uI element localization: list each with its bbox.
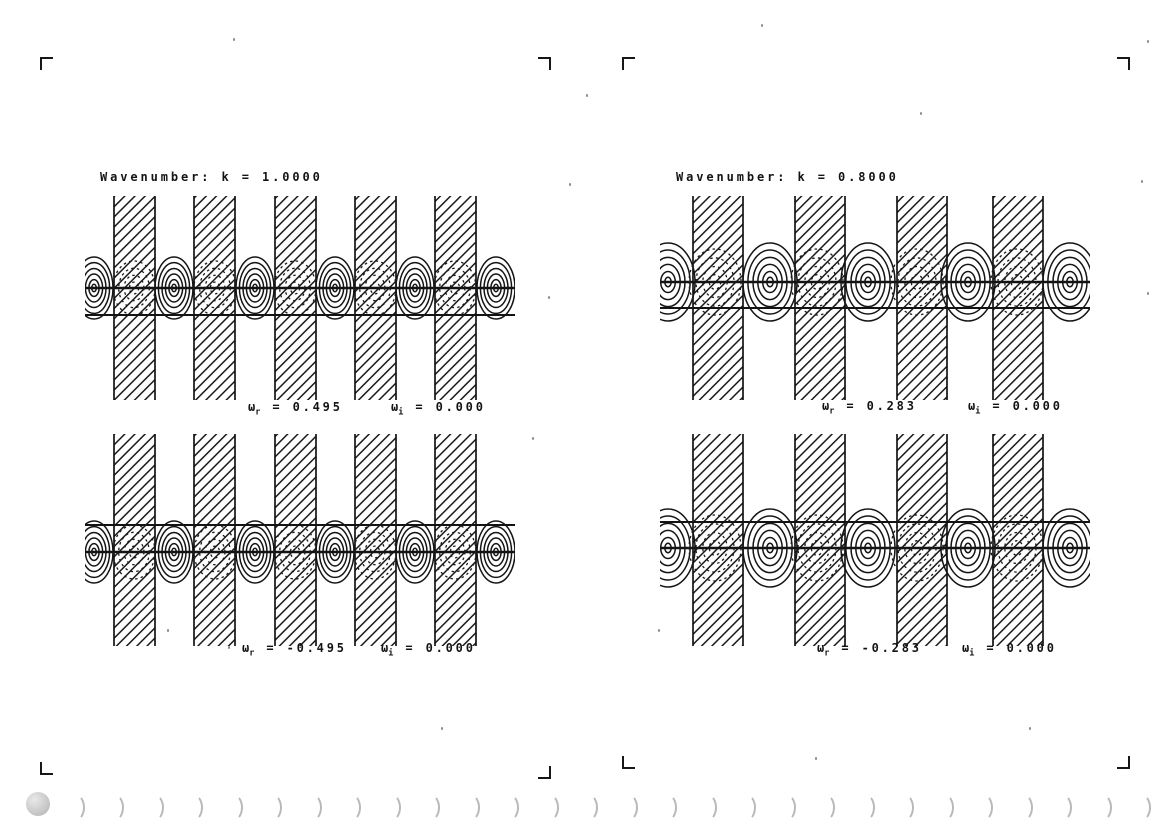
contour-plot-bottom-right [660, 428, 1090, 648]
contour-plot-bottom-left [85, 428, 515, 648]
binding-hole [1093, 794, 1112, 821]
binding-hole [777, 794, 796, 821]
panel-top-right: Wavenumber: k = 0.8000 ωr=0.283 ωi=0.000 [660, 168, 1090, 418]
omega-subscript: i [388, 648, 393, 658]
omega-i-symbol: ωi [381, 641, 393, 655]
omega-r-symbol: ωr [817, 641, 829, 655]
panel-bottom-right: ωr=-0.283 ωi=0.000 [660, 428, 1090, 663]
omega-r-value: -0.495 [287, 641, 347, 655]
scan-noise-dot [815, 757, 817, 760]
omega-subscript: r [249, 648, 254, 658]
scan-noise-dot [441, 727, 443, 730]
binding-hole [895, 794, 914, 821]
omega-r-value: -0.283 [862, 641, 922, 655]
panel-bottom-left: ωr=-0.495 ωi=0.000 [85, 428, 515, 663]
equals-sign: = [272, 400, 279, 414]
binding-hole [66, 794, 85, 821]
omega-subscript: r [829, 406, 834, 416]
omega-r-label: ωr=-0.283 [817, 641, 922, 658]
binding-hole [540, 794, 559, 821]
omega-i-label: ωi=0.000 [968, 399, 1063, 416]
binding-hole [224, 794, 243, 821]
crop-mark-right-page-bottom-right [1117, 756, 1130, 769]
binding-hole [974, 794, 993, 821]
omega-i-symbol: ωi [968, 399, 980, 413]
omega-subscript: i [969, 648, 974, 658]
omega-subscript: i [975, 406, 980, 416]
equals-sign: = [266, 641, 273, 655]
omega-r-symbol: ωr [822, 399, 834, 413]
binding-hole [1053, 794, 1072, 821]
crop-mark-left-page-bottom-right [538, 766, 551, 779]
omega-r-label: ωr=0.283 [822, 399, 917, 416]
scanned-figure-page: Wavenumber: k = 1.0000 ωr=0.495 ωi=0.000… [0, 0, 1167, 828]
crop-mark-right-page-bottom-left [622, 756, 635, 769]
scan-noise-dot [586, 94, 588, 97]
binding-hole [935, 794, 954, 821]
omega-r-value: 0.495 [293, 400, 343, 414]
scan-noise-dot [1147, 40, 1149, 43]
scan-noise-dot [532, 437, 534, 440]
binding-hole [342, 794, 361, 821]
wavenumber-title: Wavenumber: k = 0.8000 [676, 170, 899, 184]
crop-mark-left-page-top-left [40, 57, 53, 70]
binding-hole [105, 794, 124, 821]
equals-sign: = [841, 641, 848, 655]
binding-hole [698, 794, 717, 821]
binding-hole [658, 794, 677, 821]
omega-i-label: ωi=0.000 [391, 400, 486, 417]
omega-i-value: 0.000 [1013, 399, 1063, 413]
scan-noise-dot [1029, 727, 1031, 730]
equals-sign: = [992, 399, 999, 413]
binding-hole [619, 794, 638, 821]
binding-hole [856, 794, 875, 821]
scan-noise-dot [548, 296, 550, 299]
omega-i-label: ωi=0.000 [381, 641, 476, 658]
scan-noise-dot [233, 38, 235, 41]
contour-plot-top-right [660, 190, 1090, 402]
omega-i-symbol: ωi [962, 641, 974, 655]
scan-noise-dot [167, 629, 169, 632]
omega-r-value: 0.283 [867, 399, 917, 413]
binding-hole [579, 794, 598, 821]
omega-i-label: ωi=0.000 [962, 641, 1057, 658]
binding-hole [737, 794, 756, 821]
equals-sign: = [986, 641, 993, 655]
binding-hole [461, 794, 480, 821]
binding-hole [1132, 794, 1151, 821]
scan-noise-dot [761, 24, 763, 27]
wavenumber-title: Wavenumber: k = 1.0000 [100, 170, 323, 184]
omega-subscript: r [255, 407, 260, 417]
equals-sign: = [415, 400, 422, 414]
binding-hole [263, 794, 282, 821]
omega-subscript: i [398, 407, 403, 417]
binding-hole [1014, 794, 1033, 821]
scan-noise-dot [1147, 292, 1149, 295]
binding-hole [421, 794, 440, 821]
omega-r-symbol: ωr [242, 641, 254, 655]
omega-subscript: r [824, 648, 829, 658]
binding-hole [145, 794, 164, 821]
equals-sign: = [405, 641, 412, 655]
omega-i-value: 0.000 [436, 400, 486, 414]
scan-noise-dot [920, 112, 922, 115]
crop-mark-left-page-bottom-left [40, 762, 53, 775]
panel-top-left: Wavenumber: k = 1.0000 ωr=0.495 ωi=0.000 [85, 168, 515, 418]
binding-hole [500, 794, 519, 821]
binding-hole [816, 794, 835, 821]
binding-hole [26, 792, 50, 816]
contour-plot-top-left [85, 190, 515, 402]
omega-i-value: 0.000 [1007, 641, 1057, 655]
omega-r-label: ωr=0.495 [248, 400, 343, 417]
scan-noise-dot [1141, 180, 1143, 183]
binding-hole [382, 794, 401, 821]
crop-mark-right-page-top-left [622, 57, 635, 70]
scan-noise-dot [228, 646, 230, 649]
omega-r-symbol: ωr [248, 400, 260, 414]
scan-noise-dot [569, 183, 571, 186]
crop-mark-right-page-top-right [1117, 57, 1130, 70]
binding-hole [303, 794, 322, 821]
omega-r-label: ωr=-0.495 [242, 641, 347, 658]
equals-sign: = [846, 399, 853, 413]
crop-mark-left-page-top-right [538, 57, 551, 70]
omega-i-value: 0.000 [426, 641, 476, 655]
scan-noise-dot [658, 629, 660, 632]
binding-hole [184, 794, 203, 821]
omega-i-symbol: ωi [391, 400, 403, 414]
